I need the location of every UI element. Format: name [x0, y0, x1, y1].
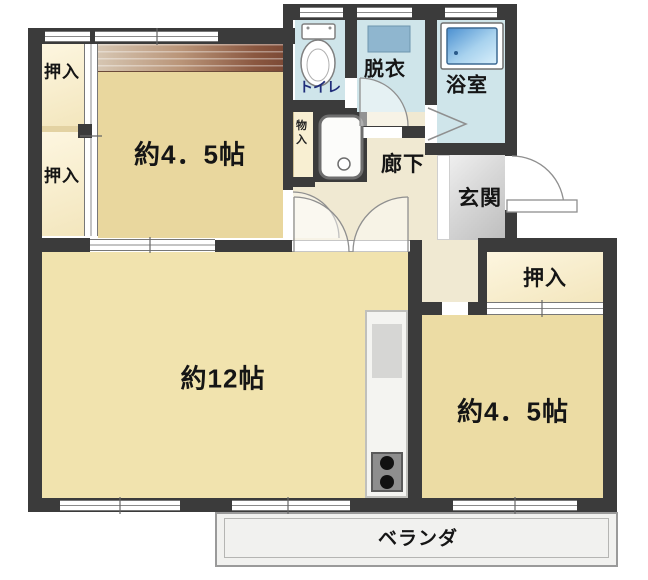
- label-closet-top-left: 押入: [44, 58, 80, 83]
- stove-burners: [380, 456, 394, 489]
- floor-plan: 押入 押入 約4．5帖 トイレ 脱衣 浴室 物入 廊下 玄関 押入 約12帖 約…: [0, 0, 648, 580]
- label-entrance: 玄関: [458, 182, 502, 212]
- entrance-door: [507, 156, 577, 212]
- label-dressing: 脱衣: [364, 53, 406, 82]
- sink-icon: [368, 26, 410, 52]
- label-living: 約12帖: [181, 359, 266, 396]
- double-door-arcs: [294, 197, 408, 252]
- bath-door-icon: [428, 108, 466, 140]
- label-bath: 浴室: [446, 69, 488, 98]
- label-bedroom-top: 約4．5帖: [134, 135, 246, 172]
- label-bedroom-right: 約4．5帖: [457, 392, 569, 429]
- dressing-door-arc: [360, 78, 408, 126]
- label-toilet: トイレ: [299, 77, 341, 97]
- label-storage: 物入: [296, 120, 311, 148]
- label-closet-right: 押入: [523, 262, 567, 292]
- label-closet-bottom-left: 押入: [44, 162, 80, 187]
- label-hallway: 廊下: [381, 148, 425, 178]
- bathtub-icon: [441, 23, 503, 69]
- window-ticks: [80, 28, 542, 514]
- label-veranda: ベランダ: [378, 524, 458, 551]
- washbasin-icon: [320, 116, 362, 178]
